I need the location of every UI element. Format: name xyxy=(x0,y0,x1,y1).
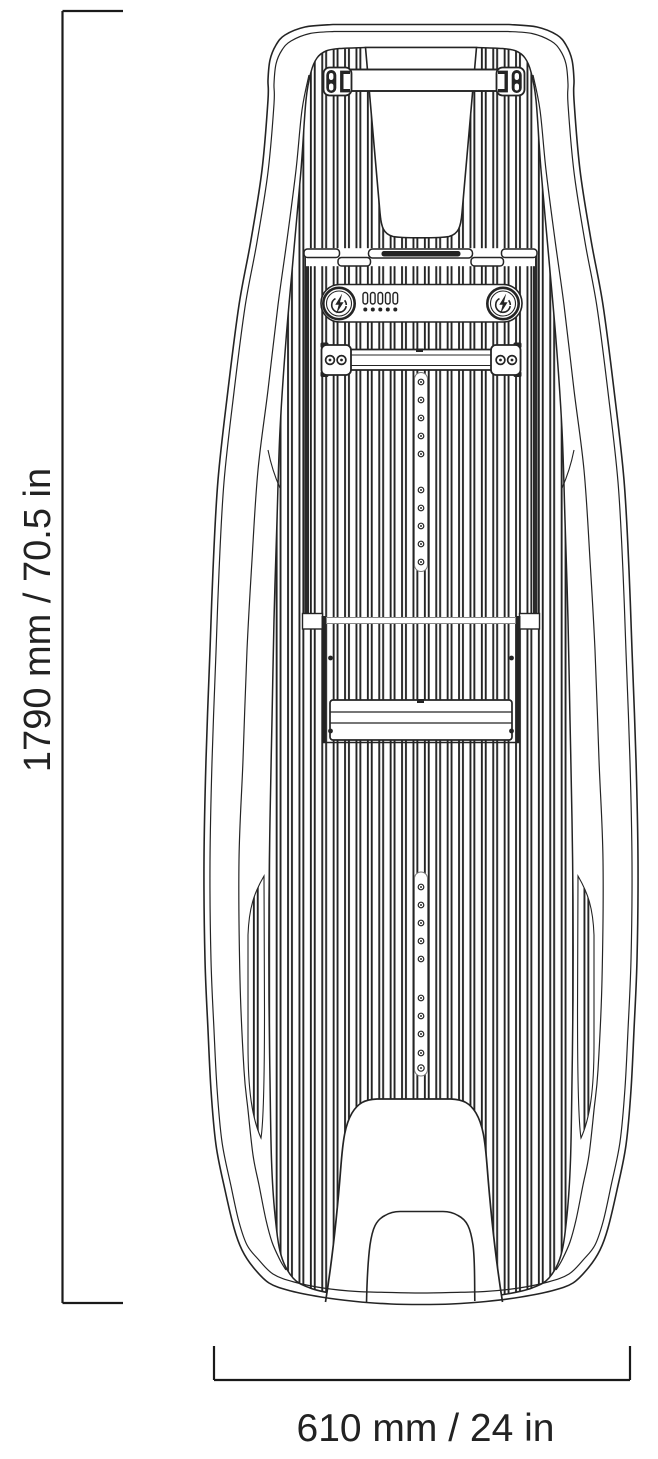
svg-text:610 mm / 24 in: 610 mm / 24 in xyxy=(297,1407,555,1450)
svg-text:1790 mm / 70.5 in: 1790 mm / 70.5 in xyxy=(17,468,59,772)
